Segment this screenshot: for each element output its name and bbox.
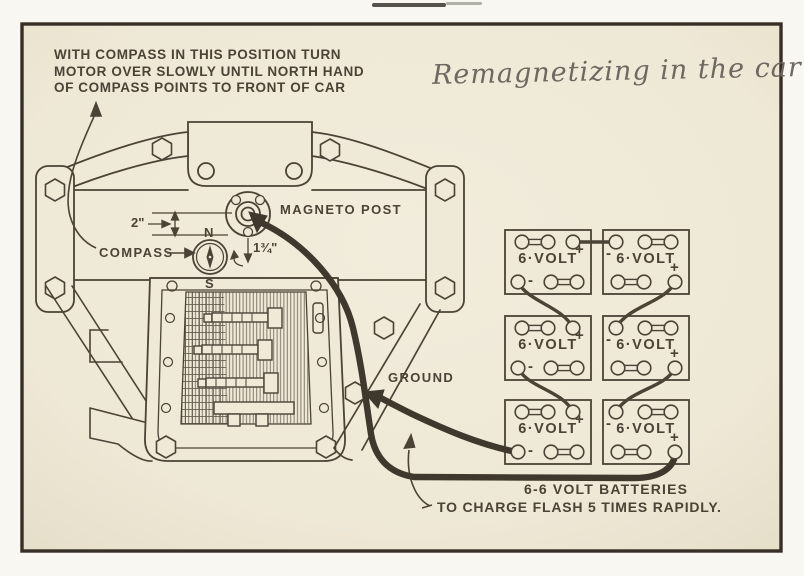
compass-north-label: N <box>204 225 215 240</box>
battery-minus-terminal-label: - <box>606 333 611 347</box>
instruction-note: WITH COMPASS IN THIS POSITION TURN MOTOR… <box>54 47 364 97</box>
magneto-post-icon <box>226 192 270 237</box>
battery-middle-right: 6·VOLT + - <box>603 316 689 380</box>
battery-minus-terminal-label: - <box>528 274 533 288</box>
ground-label: GROUND <box>388 370 454 385</box>
battery-middle-left: 6·VOLT + - <box>505 316 591 380</box>
battery-plus-terminal-label: + <box>575 329 584 343</box>
battery-top-left: 6·VOLT + - <box>505 230 591 294</box>
dimension-2-inch-label: 2" <box>131 215 144 230</box>
battery-plus-terminal-label: + <box>670 431 679 445</box>
magneto-post-label: MAGNETO POST <box>280 202 402 217</box>
battery-plus-terminal-label: + <box>670 347 679 361</box>
battery-plus-terminal-label: + <box>670 261 679 275</box>
compass-icon <box>193 240 227 274</box>
battery-bottom-right: 6·VOLT + - <box>603 400 689 464</box>
scanned-page: WITH COMPASS IN THIS POSITION TURN MOTOR… <box>0 0 804 576</box>
compass-label: COMPASS <box>99 245 174 260</box>
battery-plus-terminal-label: + <box>575 413 584 427</box>
batteries-caption: 6-6 VOLT BATTERIES <box>524 481 688 497</box>
battery-minus-terminal-label: - <box>606 417 611 431</box>
battery-bottom-left: 6·VOLT + - <box>505 400 591 464</box>
battery-top-right: 6·VOLT + - <box>603 230 689 294</box>
charge-instruction: TO CHARGE FLASH 5 TIMES RAPIDLY. <box>437 499 722 515</box>
dimension-1-3-4-inch-label: 1¾" <box>253 240 277 255</box>
battery-minus-terminal-label: - <box>528 360 533 374</box>
battery-minus-terminal-label: - <box>606 247 611 261</box>
battery-plus-terminal-label: + <box>575 243 584 257</box>
compass-south-label: S <box>205 276 215 291</box>
battery-minus-terminal-label: - <box>528 444 533 458</box>
